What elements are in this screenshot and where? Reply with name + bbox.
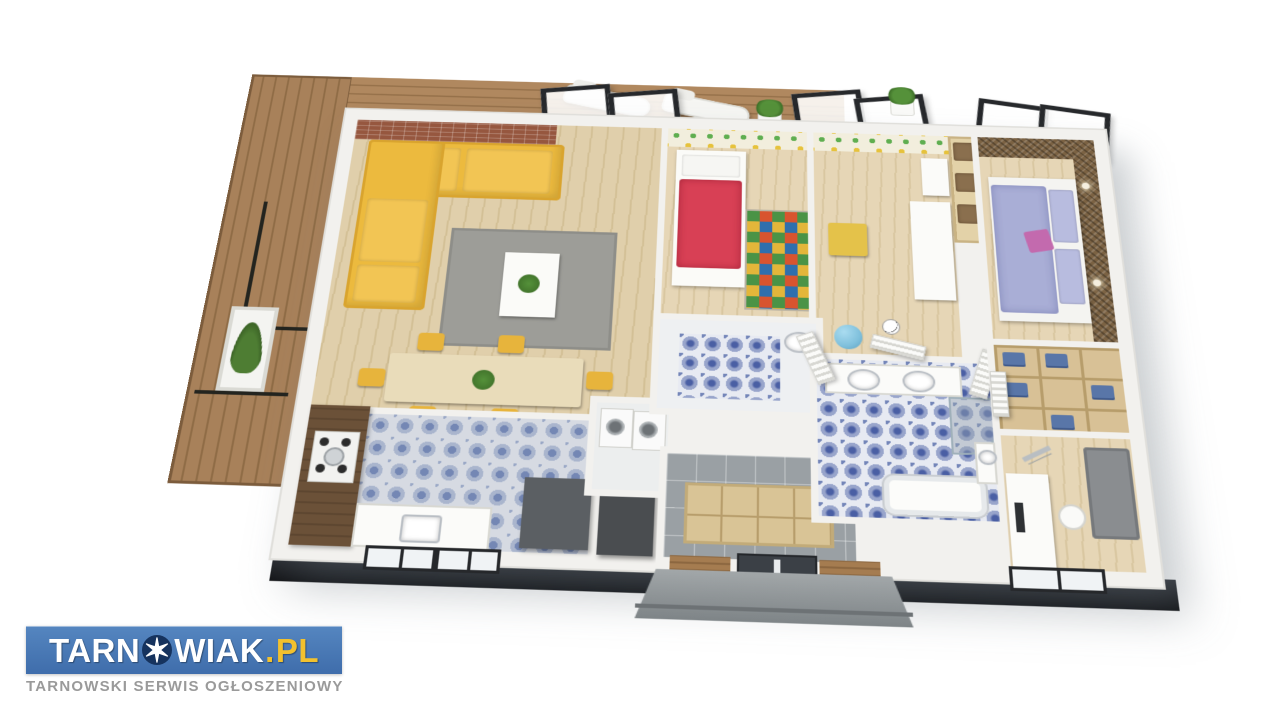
basin-cabinet — [974, 442, 998, 485]
hob-burner — [319, 437, 330, 446]
ornamental-grass — [227, 322, 269, 374]
sofa-cushion — [352, 264, 420, 303]
washing-machine — [599, 408, 634, 448]
wash-basin — [902, 370, 936, 393]
coffee-table — [499, 252, 560, 317]
soccer-ball — [882, 319, 901, 335]
dining-chair — [417, 333, 445, 351]
wall-sconce — [1093, 279, 1102, 286]
table-centerpiece — [471, 370, 495, 390]
logo-banner: TARN ✶ WIAK . PL — [26, 626, 342, 674]
logo-text-part1: TARN — [49, 634, 140, 667]
room-kids-bathroom — [657, 319, 818, 413]
room-laundry — [592, 402, 669, 491]
folded-clothes — [1091, 385, 1115, 400]
folded-clothes — [1051, 415, 1075, 431]
bathtub — [881, 473, 990, 519]
bed-pillow — [1048, 190, 1079, 243]
hob-burner — [341, 438, 352, 447]
dryer — [632, 411, 667, 451]
wicker-basket — [957, 204, 980, 224]
logo-dot: . — [265, 634, 275, 667]
wicker-basket — [953, 142, 975, 161]
bed-pillow — [681, 154, 740, 177]
gym-ball — [834, 324, 863, 349]
kitchen-sink — [399, 514, 443, 543]
dining-chair — [497, 335, 525, 353]
red-duvet — [676, 179, 742, 269]
dining-table — [384, 353, 584, 408]
logo-subtitle: TARNOWSKI SERWIS OGŁOSZENIOWY — [26, 678, 356, 695]
master-bed — [988, 177, 1092, 324]
logo-text-part2: WIAK — [174, 634, 264, 667]
vanity — [825, 363, 963, 398]
table-plant — [517, 274, 540, 293]
entry-shelving — [683, 482, 834, 548]
potted-plant — [890, 98, 915, 116]
bed-pillow — [1054, 249, 1086, 305]
wash-basin — [978, 450, 998, 466]
window-frame — [1009, 566, 1108, 594]
kitchen-sink-counter — [351, 503, 493, 551]
house-shell — [271, 109, 1164, 588]
sofa-cushion — [462, 148, 553, 194]
wall-shelf — [921, 158, 950, 196]
play-desk — [910, 201, 957, 300]
plant-leaves — [885, 87, 919, 105]
page: { "watermark": { "part1": "TARN", "star_… — [0, 0, 1280, 719]
dark-sideboard — [596, 489, 655, 556]
folded-clothes — [1005, 382, 1029, 397]
logo-tld: PL — [276, 634, 319, 667]
desk-monitor — [1014, 503, 1025, 533]
hob-burner — [337, 464, 348, 473]
plant-leaves — [753, 99, 786, 118]
kids-side-table — [828, 223, 868, 257]
cooking-pot — [322, 447, 346, 467]
kids-bed — [672, 150, 747, 288]
window-frame — [434, 547, 501, 574]
study-desk — [1006, 473, 1057, 567]
porch-steps — [634, 568, 913, 627]
hob-burner — [315, 464, 326, 473]
wicker-basket — [955, 173, 977, 192]
gas-hob — [307, 431, 361, 484]
dining-chair — [357, 368, 386, 387]
logo-star-icon: ✶ — [142, 635, 172, 665]
bathroom-floor-tile — [678, 334, 781, 401]
watermark-logo: TARN ✶ WIAK . PL TARNOWSKI SERWIS OGŁOSZ… — [26, 626, 356, 695]
kids-wallpaper — [813, 132, 948, 154]
folded-clothes — [1045, 353, 1069, 368]
floor-plan-render — [143, 74, 1170, 636]
folded-clothes — [1002, 352, 1026, 367]
window-frame — [363, 545, 437, 572]
kitchen-island — [519, 477, 592, 550]
sofa-cushion — [358, 198, 429, 263]
dining-chair — [586, 371, 614, 390]
room-walk-in-closet — [994, 345, 1130, 440]
wash-basin — [847, 369, 880, 392]
wall-sconce — [1082, 183, 1090, 189]
